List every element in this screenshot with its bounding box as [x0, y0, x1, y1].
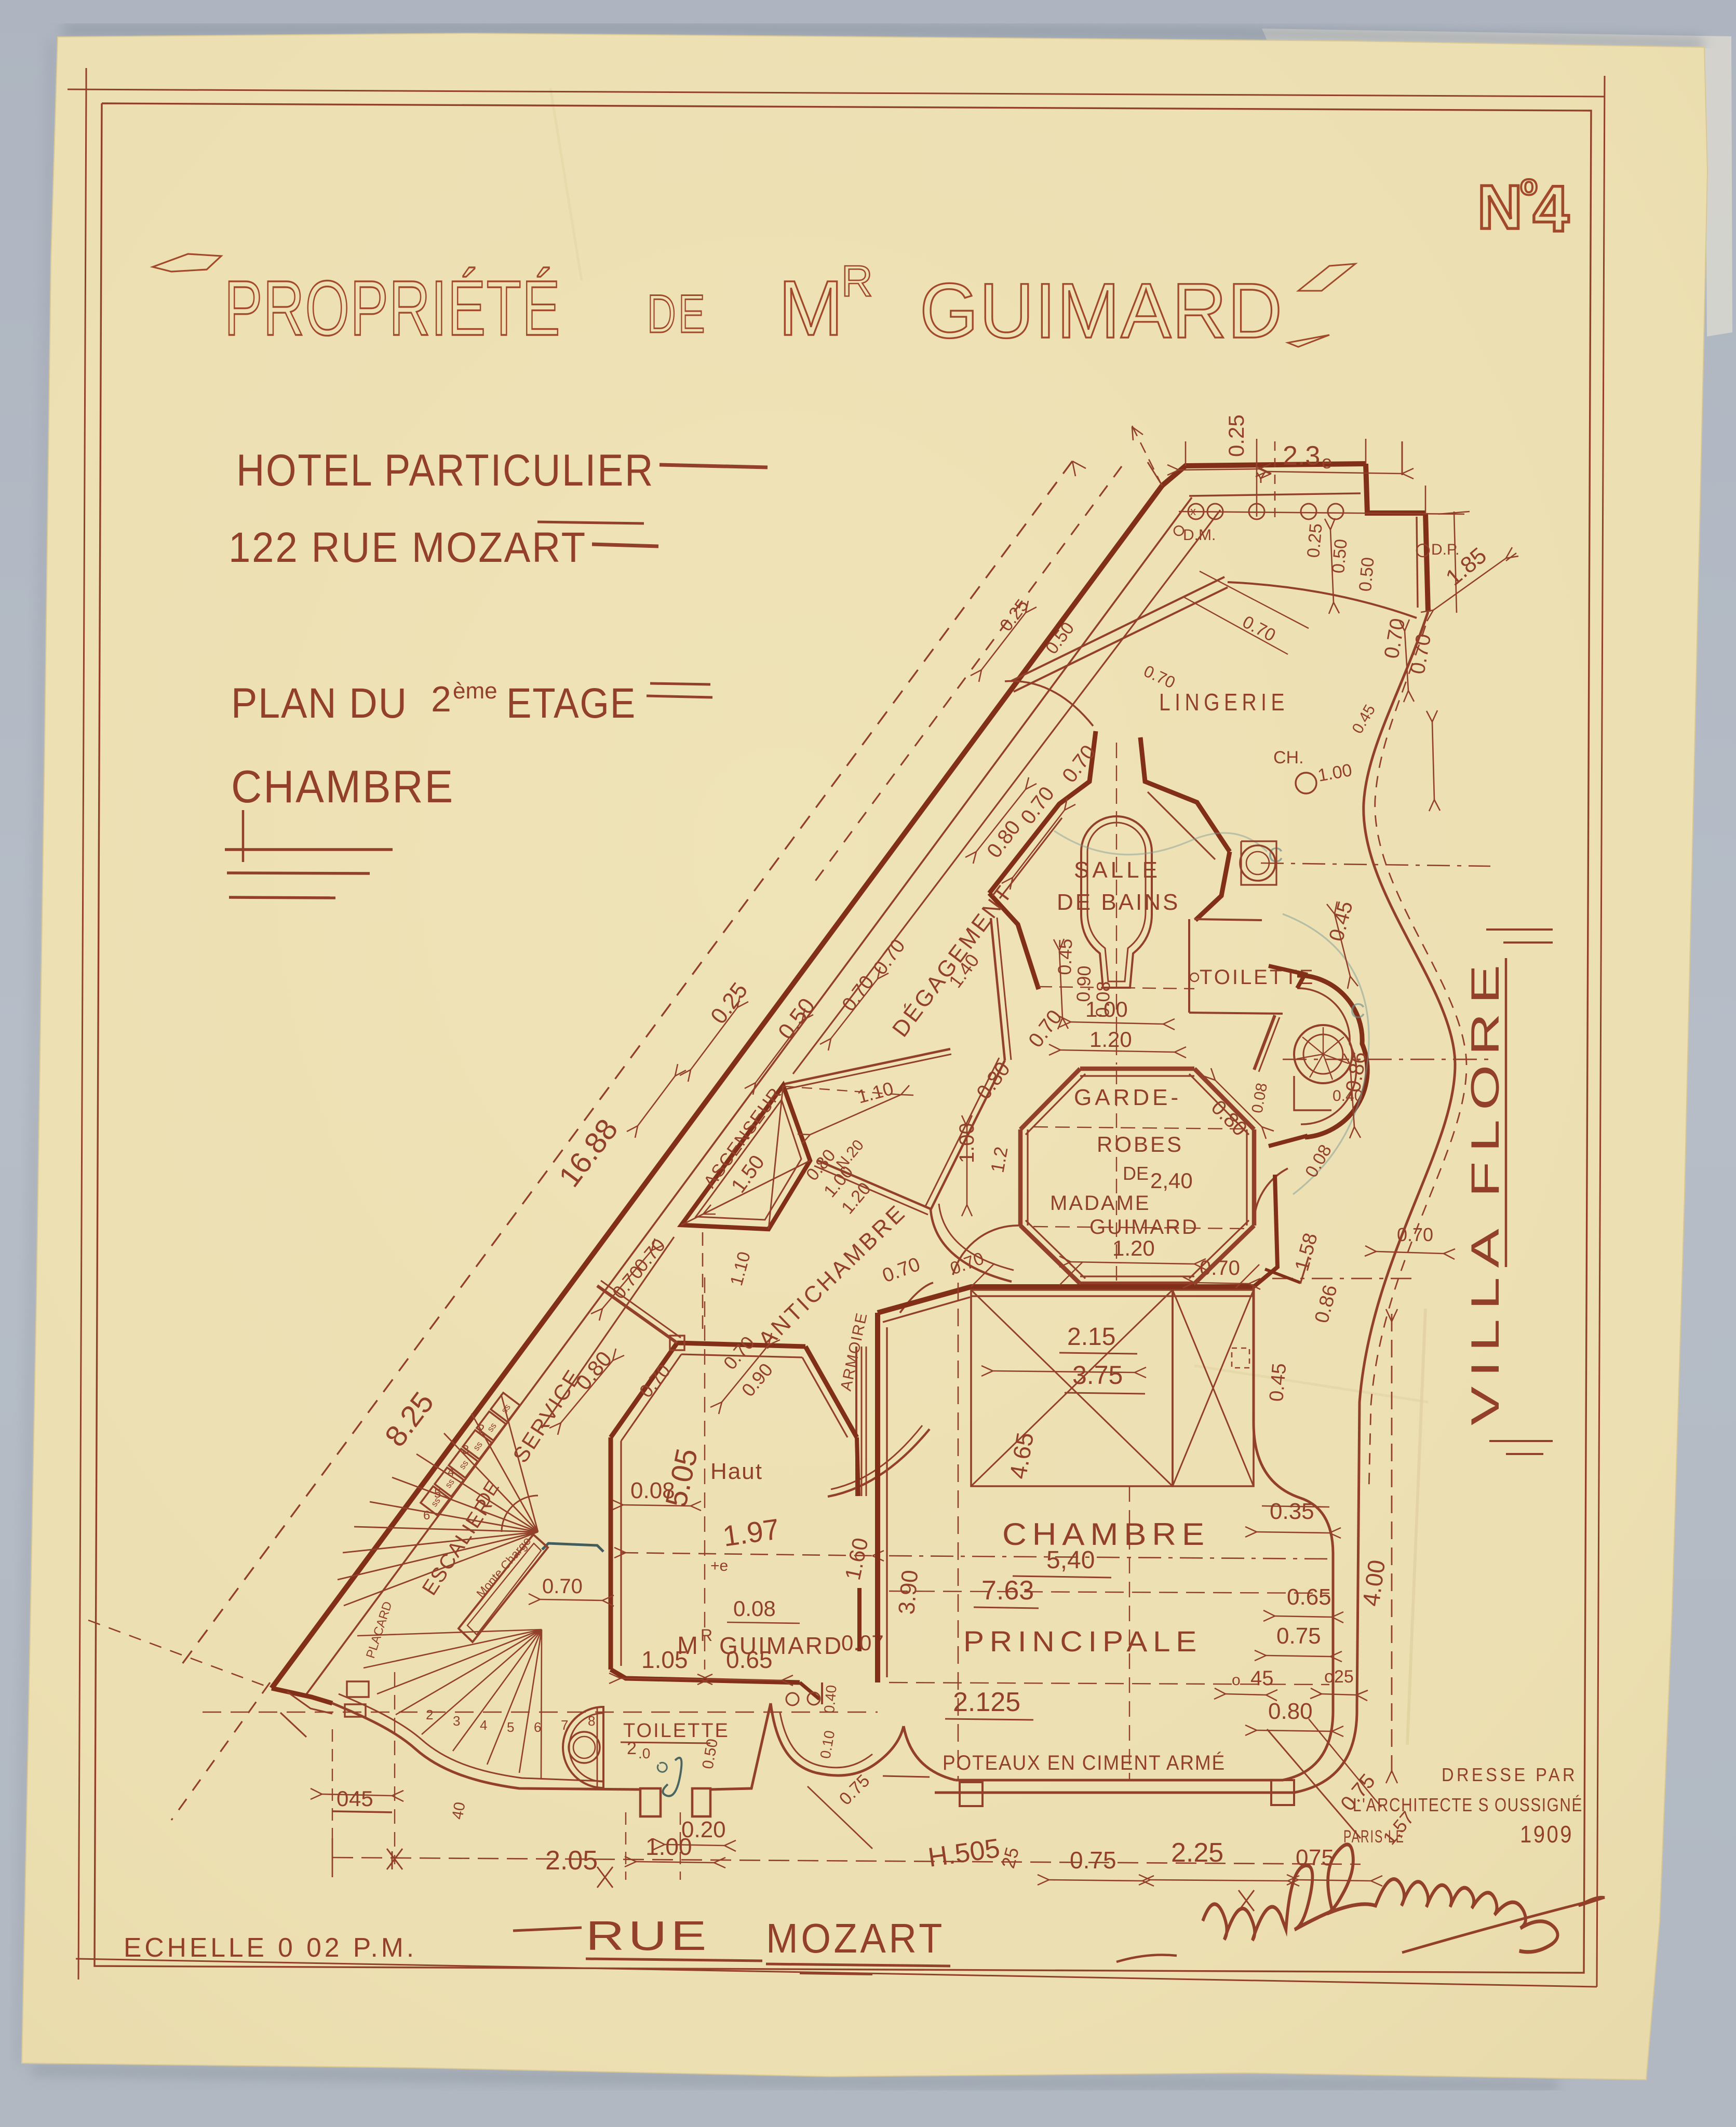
svg-text:PRINCIPALE: PRINCIPALE — [963, 1625, 1202, 1658]
svg-text:0.20: 0.20 — [681, 1817, 726, 1842]
svg-text:0.65: 0.65 — [726, 1646, 773, 1673]
svg-text:GARDE-: GARDE- — [1074, 1085, 1181, 1110]
svg-text:CH.: CH. — [1273, 748, 1304, 768]
svg-text:7.63: 7.63 — [981, 1576, 1034, 1606]
svg-text:0: 0 — [337, 1786, 348, 1811]
svg-text:R: R — [701, 1626, 712, 1645]
svg-text:4: 4 — [480, 1717, 487, 1733]
svg-text:D.M.: D.M. — [1183, 527, 1216, 544]
svg-text:o: o — [1232, 1672, 1241, 1689]
svg-text:+e: +e — [710, 1557, 728, 1574]
svg-text:DE BAINS: DE BAINS — [1057, 890, 1180, 915]
svg-text:0.45: 0.45 — [1266, 1362, 1290, 1402]
svg-text:3.90: 3.90 — [894, 1569, 923, 1616]
svg-text:2: 2 — [426, 1707, 433, 1722]
svg-text:2.3: 2.3 — [1283, 441, 1320, 471]
svg-text:0.35: 0.35 — [1270, 1499, 1314, 1524]
svg-text:122 RUE MOZART: 122 RUE MOZART — [228, 524, 587, 571]
svg-text:0.70: 0.70 — [542, 1575, 583, 1598]
svg-text:1.20: 1.20 — [1112, 1236, 1155, 1260]
svg-text:L'ARCHITECTE S OUSSIGNÉ: L'ARCHITECTE S OUSSIGNÉ — [1353, 1794, 1583, 1815]
svg-text:R: R — [841, 257, 873, 305]
svg-text:2.15: 2.15 — [1067, 1323, 1115, 1351]
svg-text:PLAN DU: PLAN DU — [231, 680, 408, 727]
svg-text:0.40: 0.40 — [821, 1685, 840, 1714]
svg-text:DRESSE PAR: DRESSE PAR — [1442, 1764, 1578, 1785]
svg-text:6: 6 — [423, 1509, 430, 1523]
svg-text:1.00: 1.00 — [1085, 997, 1128, 1021]
svg-text:2: 2 — [431, 679, 451, 719]
svg-text:GUIMARD: GUIMARD — [920, 267, 1283, 354]
svg-text:0.65: 0.65 — [1287, 1584, 1331, 1610]
svg-text:0.50: 0.50 — [1355, 556, 1378, 592]
svg-text:.0: .0 — [638, 1745, 650, 1761]
svg-text:ECHELLE 0 02 P.M.: ECHELLE 0 02 P.M. — [124, 1933, 417, 1963]
svg-text:0.70: 0.70 — [1397, 1224, 1433, 1245]
svg-text:ETAGE: ETAGE — [506, 680, 636, 727]
svg-text:SALLE: SALLE — [1074, 857, 1161, 883]
svg-text:CHAMBRE: CHAMBRE — [1002, 1517, 1210, 1552]
svg-text:0.75: 0.75 — [1070, 1847, 1116, 1874]
svg-text:3: 3 — [453, 1713, 460, 1729]
svg-text:TOILETTE: TOILETTE — [623, 1720, 730, 1742]
svg-text:PROPRIÉTÉ: PROPRIÉTÉ — [224, 264, 561, 352]
svg-text:5: 5 — [507, 1719, 514, 1735]
svg-text:CHAMBRE: CHAMBRE — [231, 761, 454, 812]
svg-text:VILLA FLORE: VILLA FLORE — [1463, 955, 1508, 1425]
svg-text:DE: DE — [1123, 1163, 1149, 1184]
svg-text:0.25: 0.25 — [1224, 414, 1248, 457]
svg-text:Y: Y — [1256, 469, 1266, 487]
svg-text:2.05: 2.05 — [545, 1846, 598, 1876]
svg-text:1909: 1909 — [1520, 1821, 1573, 1848]
svg-text:ème: ème — [453, 678, 497, 704]
svg-text:40: 40 — [449, 1801, 468, 1821]
svg-text:o25: o25 — [1324, 1667, 1354, 1687]
svg-text:e: e — [1322, 451, 1332, 473]
svg-text:0.80: 0.80 — [1268, 1699, 1313, 1724]
svg-text:2.25: 2.25 — [1171, 1838, 1223, 1868]
svg-text:N: N — [1477, 172, 1523, 242]
svg-text:Haut: Haut — [710, 1459, 763, 1484]
svg-text:2,40: 2,40 — [1150, 1168, 1193, 1193]
svg-text:0.08: 0.08 — [733, 1596, 776, 1621]
svg-text:5,40: 5,40 — [1046, 1546, 1095, 1574]
svg-text:45: 45 — [349, 1786, 373, 1811]
svg-text:1.20: 1.20 — [1089, 1027, 1132, 1052]
svg-text:45: 45 — [1250, 1667, 1274, 1690]
svg-text:RUE: RUE — [586, 1913, 710, 1959]
svg-text:DE: DE — [647, 284, 707, 344]
svg-text:0.75: 0.75 — [1276, 1623, 1321, 1649]
svg-text:M: M — [778, 264, 843, 352]
svg-text:0.25: 0.25 — [1303, 522, 1326, 558]
svg-text:HOTEL PARTICULIER: HOTEL PARTICULIER — [236, 446, 654, 495]
svg-text:3.75: 3.75 — [1072, 1361, 1123, 1390]
svg-text:LINGERIE: LINGERIE — [1159, 689, 1289, 716]
svg-text:4: 4 — [1533, 173, 1569, 245]
svg-text:1.05: 1.05 — [641, 1646, 688, 1673]
svg-text:1.2: 1.2 — [987, 1145, 1012, 1174]
svg-text:POTEAUX EN CIMENT ARMÉ: POTEAUX EN CIMENT ARMÉ — [943, 1751, 1226, 1774]
svg-text:0.45: 0.45 — [1054, 938, 1076, 975]
svg-text:0.70: 0.70 — [1200, 1257, 1240, 1280]
svg-text:PARIS LE: PARIS LE — [1343, 1827, 1405, 1847]
svg-text:MOZART: MOZART — [766, 1915, 945, 1961]
svg-text:2.125: 2.125 — [953, 1687, 1020, 1717]
svg-text:ROBES: ROBES — [1097, 1132, 1183, 1156]
svg-text:6: 6 — [534, 1719, 541, 1735]
svg-text:C: C — [1350, 1000, 1365, 1022]
svg-text:MADAME: MADAME — [1050, 1192, 1151, 1215]
